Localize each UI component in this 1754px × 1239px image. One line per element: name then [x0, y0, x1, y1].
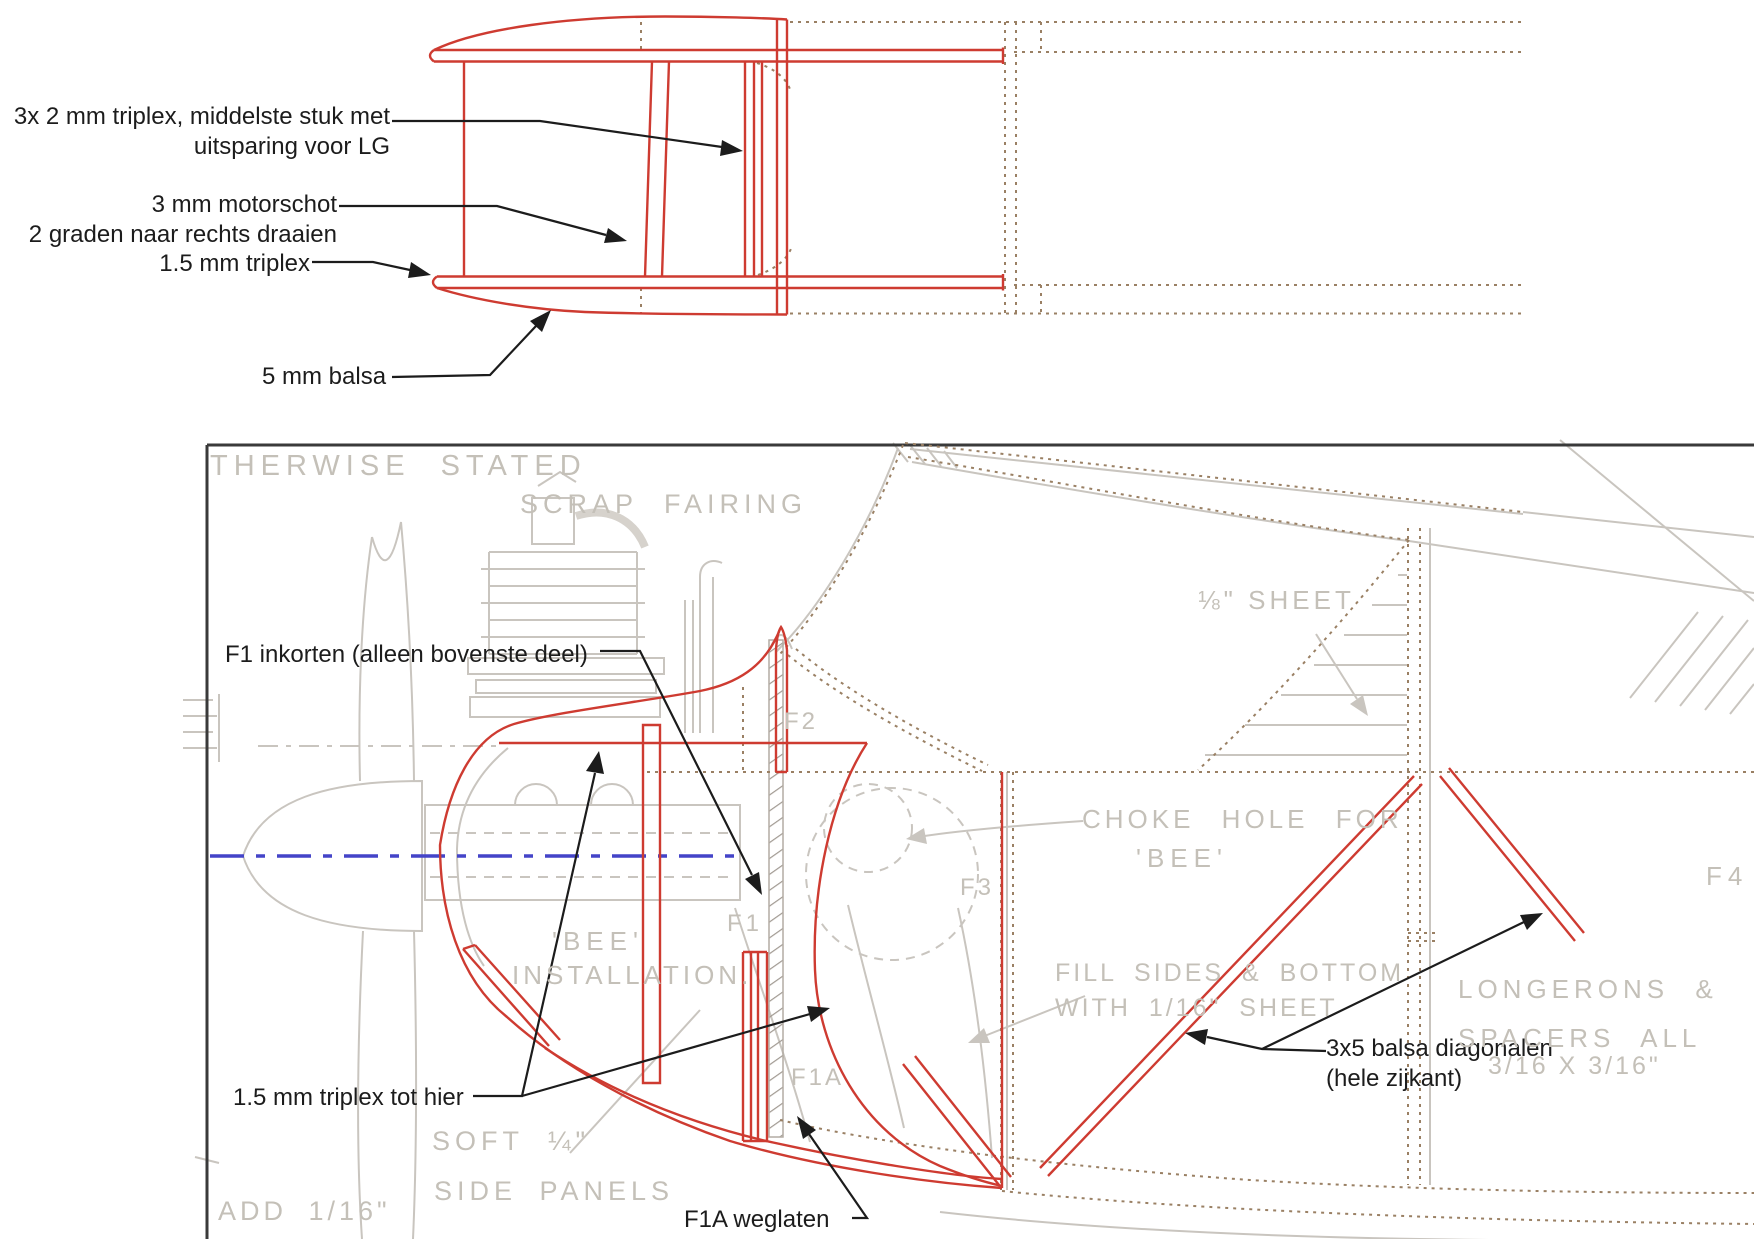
former-label-f2: F2	[784, 708, 818, 736]
label-3x2mm-triplex: 3x 2 mm triplex, middelste stuk met uits…	[14, 102, 390, 162]
plan-text-choke-hole: CHOKE HOLE FOR	[1082, 804, 1403, 835]
engine-pipe	[700, 561, 722, 733]
cowl-outline	[440, 629, 1002, 1188]
label-15mm-triplex: 1.5 mm triplex	[159, 249, 310, 279]
diagonal-falling	[1440, 768, 1584, 941]
f1-new-former	[643, 725, 660, 1083]
topview-bottom-curve	[437, 288, 787, 315]
former-label-f1a: F1A	[791, 1064, 844, 1092]
topview-top-sheet	[430, 48, 1003, 65]
blueprint-page: 3x 2 mm triplex, middelste stuk met uits…	[0, 0, 1754, 1239]
topview-triplex-stack	[745, 62, 762, 277]
former-label-f3: F3	[960, 874, 994, 902]
sheet18-arrow	[1316, 634, 1357, 699]
plan-text-installation: INSTALLATION.	[512, 960, 752, 991]
plan-text-fill-sides: FILL SIDES & BOTTOM	[1055, 959, 1404, 988]
plan-text-side-panels: SIDE PANELS	[434, 1176, 674, 1207]
plan-text-bee-left: 'BEE'	[552, 926, 644, 957]
engine-fins	[481, 552, 645, 654]
plan-text-add-116: ADD 1/16"	[218, 1196, 391, 1227]
grey-underlay	[183, 440, 1754, 1239]
plan-text-bee-right: 'BEE'	[1136, 843, 1228, 874]
topview-bottom-sheet	[433, 274, 1003, 291]
choke-hole-circle	[824, 784, 912, 872]
label-5mm-balsa: 5 mm balsa	[262, 362, 386, 392]
label-f1-inkorten: F1 inkorten (alleen bovenste deel)	[225, 640, 588, 670]
plan-text-longerons: LONGERONS &	[1458, 974, 1718, 1005]
label-motorschot: 3 mm motorschot 2 graden naar rechts dra…	[29, 190, 337, 250]
label-triplex-tot-hier: 1.5 mm triplex tot hier	[233, 1083, 464, 1113]
plan-frame	[207, 445, 1754, 1239]
plan-text-otherwise-stated: THERWISE STATED	[210, 450, 587, 483]
plan-text-spacers: SPACERS ALL	[1458, 1023, 1701, 1054]
diagonal-left	[903, 1056, 1011, 1185]
former-label-f1: F1	[727, 910, 763, 938]
plan-text-18-sheet: ⅛" SHEET	[1198, 585, 1355, 616]
plan-text-spacers-size: 3/16 X 3/16"	[1488, 1052, 1661, 1081]
plan-text-soft-quarter: SOFT ¼"	[432, 1126, 590, 1157]
engine-mount	[425, 805, 740, 900]
label-f1a-weglaten: F1A weglaten	[684, 1205, 829, 1235]
former-label-f4: F4	[1706, 861, 1748, 892]
topview-top-curve	[434, 17, 787, 51]
topview-f1-pair	[777, 20, 787, 315]
plan-text-with-sheet: WITH 1/16" SHEET	[1055, 994, 1338, 1023]
topview-motorschot	[645, 62, 669, 277]
plan-text-scrap-fairing: SCRAP FAIRING	[520, 489, 807, 520]
